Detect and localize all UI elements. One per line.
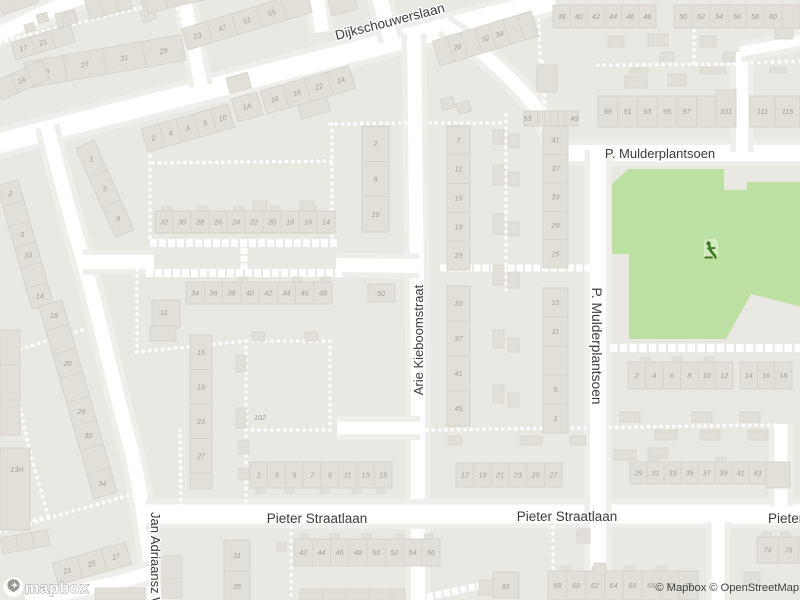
svg-text:41: 41	[455, 369, 463, 378]
svg-text:54: 54	[409, 548, 417, 557]
svg-text:Pieter Straatlaan: Pieter Straatlaan	[267, 511, 368, 526]
svg-text:23: 23	[454, 251, 463, 260]
svg-text:23: 23	[513, 471, 522, 480]
svg-text:3: 3	[275, 471, 279, 480]
svg-text:10: 10	[24, 250, 32, 259]
svg-text:54: 54	[715, 12, 723, 21]
svg-text:12: 12	[720, 371, 728, 380]
svg-text:6: 6	[670, 371, 674, 380]
svg-text:101: 101	[720, 107, 732, 116]
svg-text:50: 50	[372, 548, 380, 557]
svg-text:37: 37	[455, 334, 464, 343]
svg-text:36: 36	[209, 289, 217, 298]
svg-text:29: 29	[158, 46, 168, 56]
svg-text:48: 48	[643, 12, 651, 21]
svg-text:31: 31	[652, 469, 660, 478]
svg-text:31: 31	[233, 551, 241, 560]
svg-text:11: 11	[160, 308, 167, 317]
svg-text:15: 15	[552, 298, 561, 307]
svg-text:18: 18	[779, 371, 787, 380]
svg-text:4: 4	[652, 371, 656, 380]
svg-text:30: 30	[178, 218, 186, 227]
svg-text:58: 58	[751, 12, 759, 21]
svg-text:17: 17	[461, 471, 470, 480]
svg-text:42: 42	[592, 12, 600, 21]
svg-text:31: 31	[120, 53, 129, 63]
svg-text:43: 43	[754, 469, 762, 478]
svg-text:2: 2	[7, 189, 12, 198]
svg-text:P. Mulderplantsoen: P. Mulderplantsoen	[605, 146, 715, 161]
svg-text:52: 52	[390, 548, 398, 557]
svg-text:11: 11	[455, 165, 462, 174]
svg-text:33: 33	[552, 193, 560, 202]
svg-text:P. Mulderplantsoen: P. Mulderplantsoen	[589, 287, 604, 404]
svg-text:33: 33	[669, 469, 677, 478]
svg-text:16: 16	[304, 218, 312, 227]
svg-text:23: 23	[196, 417, 205, 426]
svg-text:24: 24	[231, 218, 240, 227]
svg-text:2: 2	[373, 139, 378, 148]
svg-text:Pieter Straatlaan: Pieter Straatlaan	[517, 509, 618, 524]
svg-text:48: 48	[319, 289, 327, 298]
svg-text:40: 40	[575, 12, 583, 21]
svg-text:50: 50	[377, 289, 385, 298]
svg-text:19: 19	[479, 471, 487, 480]
svg-text:29: 29	[551, 221, 560, 230]
svg-text:19: 19	[455, 222, 463, 231]
svg-text:25: 25	[551, 249, 561, 258]
svg-text:40: 40	[246, 289, 254, 298]
svg-text:46: 46	[301, 289, 309, 298]
svg-text:34: 34	[191, 289, 199, 298]
svg-text:37: 37	[552, 164, 561, 173]
svg-text:42: 42	[264, 289, 272, 298]
svg-text:60: 60	[572, 581, 580, 590]
svg-text:16: 16	[762, 371, 770, 380]
svg-text:2: 2	[634, 371, 639, 380]
svg-text:Pieter Str: Pieter Str	[768, 511, 800, 526]
svg-text:10: 10	[372, 210, 380, 219]
svg-text:Arie Kieboomstraat: Arie Kieboomstraat	[411, 284, 426, 395]
svg-text:11: 11	[552, 327, 559, 336]
svg-text:18: 18	[286, 218, 294, 227]
svg-text:52: 52	[697, 12, 705, 21]
svg-text:8: 8	[687, 371, 691, 380]
svg-text:49: 49	[571, 114, 579, 123]
svg-text:102: 102	[254, 413, 266, 422]
svg-text:1: 1	[257, 471, 261, 480]
svg-text:95: 95	[663, 107, 672, 116]
svg-text:15: 15	[379, 471, 388, 480]
svg-text:56: 56	[733, 12, 741, 21]
svg-text:44: 44	[609, 12, 617, 21]
svg-text:62: 62	[591, 581, 599, 590]
svg-text:41: 41	[552, 136, 560, 145]
svg-text:44: 44	[317, 548, 325, 557]
svg-text:33: 33	[455, 299, 463, 308]
svg-text:26: 26	[213, 218, 222, 227]
svg-text:89: 89	[604, 107, 612, 116]
svg-text:39: 39	[720, 469, 728, 478]
svg-text:15: 15	[197, 348, 206, 357]
svg-text:30: 30	[84, 431, 92, 440]
svg-text:19: 19	[197, 382, 205, 391]
svg-text:50: 50	[679, 12, 687, 21]
svg-text:58: 58	[553, 581, 561, 590]
svg-text:14: 14	[36, 291, 44, 300]
svg-text:32: 32	[160, 218, 168, 227]
svg-text:66: 66	[628, 581, 636, 590]
svg-text:44: 44	[282, 289, 290, 298]
svg-text:14: 14	[745, 371, 753, 380]
svg-text:28: 28	[195, 218, 204, 227]
svg-text:3: 3	[20, 230, 24, 239]
svg-text:35: 35	[686, 469, 695, 478]
svg-text:27: 27	[196, 451, 206, 460]
svg-text:13: 13	[361, 471, 369, 480]
svg-text:29: 29	[634, 469, 643, 478]
svg-text:53: 53	[523, 114, 531, 123]
svg-text:6: 6	[374, 175, 378, 184]
svg-text:© Mapbox © OpenStreetMap: © Mapbox © OpenStreetMap	[655, 582, 799, 594]
svg-text:48: 48	[354, 548, 362, 557]
svg-text:115: 115	[782, 107, 794, 116]
svg-text:9: 9	[116, 214, 120, 223]
svg-text:Jan Adriaansz W: Jan Adriaansz W	[148, 512, 163, 600]
svg-text:35: 35	[233, 582, 242, 591]
svg-text:46: 46	[626, 12, 634, 21]
svg-text:11: 11	[344, 471, 351, 480]
svg-text:14: 14	[322, 218, 330, 227]
svg-text:111: 111	[757, 107, 768, 116]
svg-text:mapbox: mapbox	[25, 580, 89, 597]
svg-text:21: 21	[495, 471, 504, 480]
svg-text:74: 74	[764, 546, 772, 555]
svg-text:97: 97	[683, 107, 692, 116]
svg-text:20: 20	[63, 359, 72, 368]
svg-text:25: 25	[531, 471, 541, 480]
svg-text:26: 26	[77, 407, 86, 416]
svg-text:46: 46	[336, 548, 344, 557]
svg-text:1: 1	[554, 414, 558, 423]
svg-text:64: 64	[610, 581, 618, 590]
svg-text:38: 38	[558, 12, 566, 21]
svg-text:68: 68	[647, 581, 655, 590]
svg-text:60: 60	[769, 12, 777, 21]
svg-text:22: 22	[249, 218, 258, 227]
svg-text:56: 56	[427, 548, 435, 557]
svg-text:9: 9	[328, 471, 332, 480]
svg-text:93: 93	[643, 107, 651, 116]
svg-text:37: 37	[703, 469, 712, 478]
svg-text:81: 81	[502, 582, 510, 591]
svg-text:1: 1	[90, 155, 94, 164]
svg-text:45: 45	[455, 404, 464, 413]
svg-text:41: 41	[737, 469, 745, 478]
svg-text:91: 91	[624, 107, 632, 116]
svg-text:76: 76	[785, 546, 793, 555]
svg-text:18: 18	[50, 311, 58, 320]
svg-text:20: 20	[267, 218, 276, 227]
svg-text:34: 34	[98, 479, 106, 488]
svg-text:42: 42	[299, 548, 307, 557]
svg-text:38: 38	[228, 289, 236, 298]
svg-text:10: 10	[703, 371, 711, 380]
svg-text:27: 27	[548, 471, 558, 480]
svg-text:13H: 13H	[10, 465, 24, 474]
svg-text:15: 15	[455, 194, 464, 203]
